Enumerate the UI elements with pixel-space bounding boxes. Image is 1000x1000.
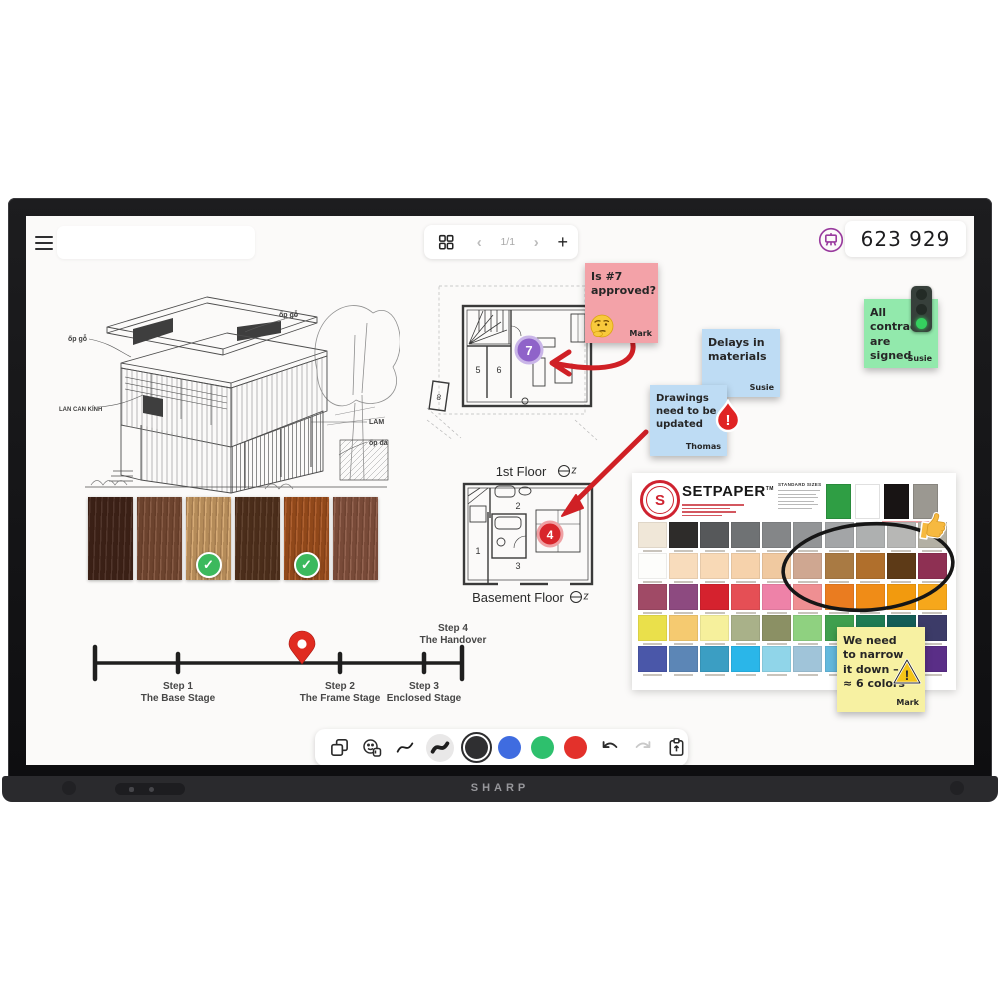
page-navigator: ‹ 1/1 › +: [424, 225, 578, 259]
basement-floor-label: Basement Floor: [472, 590, 564, 605]
basement-floor-plan[interactable]: 1 2 3 4 Basement Floor: [440, 478, 605, 610]
whiteboard-screen: ‹ 1/1 › + 623 929: [26, 216, 974, 765]
color-swatch[interactable]: [793, 522, 822, 552]
undo-icon[interactable]: [598, 736, 622, 760]
step2-label: Step 2: [325, 681, 355, 692]
clipboard-icon[interactable]: [664, 736, 688, 760]
prev-page-icon[interactable]: ‹: [477, 235, 482, 250]
sketch-label-lam: LAM: [369, 419, 384, 426]
room-3-label: 3: [515, 561, 520, 571]
color-swatch[interactable]: [825, 553, 854, 583]
svg-text:!: !: [726, 412, 731, 429]
color-swatch[interactable]: [793, 553, 822, 583]
color-swatch[interactable]: [887, 553, 916, 583]
step1-sublabel: The Base Stage: [141, 693, 216, 704]
pen-thin-icon[interactable]: [393, 736, 417, 760]
room-2-label: 2: [515, 501, 520, 511]
monitor-photo: ‹ 1/1 › + 623 929: [0, 0, 1000, 1000]
step3-label: Step 3: [409, 681, 439, 692]
wood-swatch[interactable]: [333, 497, 378, 580]
note-author: Thomas: [686, 442, 721, 452]
color-swatch[interactable]: [638, 615, 667, 645]
traffic-light-icon: [911, 286, 932, 332]
wood-samples[interactable]: ✓ ✓: [88, 497, 378, 580]
wood-swatch[interactable]: [88, 497, 133, 580]
color-swatch[interactable]: [638, 646, 667, 676]
color-swatch[interactable]: [700, 615, 729, 645]
step4-label: Step 4: [438, 623, 468, 634]
color-swatch[interactable]: [918, 584, 947, 614]
color-swatch[interactable]: [669, 553, 698, 583]
step4-sublabel: The Handover: [420, 635, 487, 646]
color-swatch[interactable]: [762, 615, 791, 645]
color-swatch[interactable]: [638, 584, 667, 614]
monitor-chin: SHARP: [2, 776, 998, 802]
color-swatch[interactable]: [793, 584, 822, 614]
color-swatch[interactable]: [762, 553, 791, 583]
note-narrow[interactable]: We need to narrow it down – ≈ 6 colors !…: [837, 627, 925, 712]
page-indicator: 1/1: [500, 236, 515, 248]
step3-sublabel: Enclosed Stage: [387, 693, 462, 704]
pen-color-dot[interactable]: [498, 736, 521, 759]
color-swatch[interactable]: [669, 522, 698, 552]
color-swatch[interactable]: [731, 522, 760, 552]
room-6-label: 6: [496, 365, 501, 375]
note-text: Drawings need to be updated: [656, 392, 721, 431]
color-swatch[interactable]: [700, 522, 729, 552]
wood-swatch[interactable]: ✓: [186, 497, 231, 580]
timeline-pin-icon: [289, 631, 315, 664]
pen-color-dot[interactable]: [531, 736, 554, 759]
color-swatch[interactable]: [638, 522, 667, 552]
house-drawing: [85, 297, 400, 493]
swatch-row-reds: [638, 584, 947, 614]
note-drawings[interactable]: Drawings need to be updated Thomas !: [650, 385, 727, 456]
wood-grain-texture: [333, 497, 378, 580]
color-swatch[interactable]: [825, 584, 854, 614]
color-swatch[interactable]: [825, 522, 854, 552]
drawing-toolbar: [315, 729, 688, 765]
color-swatch[interactable]: [918, 553, 947, 583]
pen-color-dot[interactable]: [465, 736, 488, 759]
note-author: Susie: [908, 354, 932, 364]
wood-grain-texture: [88, 497, 133, 580]
next-page-icon[interactable]: ›: [534, 235, 539, 250]
step2-sublabel: The Frame Stage: [300, 693, 381, 704]
color-swatch[interactable]: [669, 615, 698, 645]
house-sketch-image[interactable]: ốp gỗ ốp gỗ LAN CAN KÍNH LAM ốp đá: [55, 275, 400, 500]
session-code-badge: 623 929: [845, 221, 966, 257]
setpaper-logo: S: [640, 480, 680, 520]
ir-sensor: [950, 781, 964, 795]
session-code: 623 929: [861, 227, 951, 251]
header-swatch: [855, 484, 880, 519]
wood-swatch[interactable]: [137, 497, 182, 580]
svg-text:7: 7: [525, 343, 532, 358]
board-title-area: [57, 226, 255, 259]
warning-icon: !: [891, 657, 923, 687]
wood-swatch[interactable]: ✓: [284, 497, 329, 580]
color-swatch[interactable]: [669, 646, 698, 676]
color-swatch[interactable]: [887, 584, 916, 614]
share-board-icon[interactable]: [818, 227, 844, 253]
sketch-label-wood-left: ốp gỗ: [68, 334, 87, 343]
color-swatch[interactable]: [762, 522, 791, 552]
approved-check-icon: ✓: [294, 552, 320, 578]
color-swatch[interactable]: [762, 584, 791, 614]
color-swatch[interactable]: [856, 584, 885, 614]
level-mark-icon: [559, 466, 577, 477]
pen-color-dot[interactable]: [564, 736, 587, 759]
color-swatch[interactable]: [731, 615, 760, 645]
header-swatch: [884, 484, 909, 519]
swatch-row-neutrals: [638, 522, 947, 552]
sketch-label-stone: ốp đá: [369, 439, 388, 447]
color-swatch[interactable]: [700, 553, 729, 583]
marker-4[interactable]: 4: [538, 522, 562, 546]
add-page-icon[interactable]: +: [557, 232, 568, 253]
color-swatch[interactable]: [731, 553, 760, 583]
duplicate-icon[interactable]: [327, 736, 351, 760]
first-floor-plan[interactable]: 5 6 8 7 1st Floor: [425, 280, 600, 480]
color-swatch[interactable]: [793, 615, 822, 645]
marker-7[interactable]: 7: [516, 337, 542, 363]
wood-grain-texture: [137, 497, 182, 580]
sizes-heading: STANDARD SIZES: [778, 482, 821, 487]
thumbs-up-sticker[interactable]: [910, 505, 953, 548]
sharp-logo: SHARP: [2, 782, 998, 794]
color-swatch[interactable]: [669, 584, 698, 614]
color-swatch[interactable]: [731, 584, 760, 614]
note-author: Susie: [750, 383, 774, 393]
sketch-label-railing: LAN CAN KÍNH: [59, 405, 102, 413]
swatch-row-browns: [638, 553, 947, 583]
menu-icon[interactable]: [35, 236, 53, 250]
color-swatch[interactable]: [793, 646, 822, 676]
page-overview-icon[interactable]: [434, 230, 458, 254]
svg-text:4: 4: [547, 528, 554, 542]
step1-label: Step 1: [163, 681, 193, 692]
urgent-flame-icon: !: [713, 399, 743, 435]
wood-swatch[interactable]: [235, 497, 280, 580]
sticker-emoji-icon[interactable]: [360, 736, 384, 760]
color-swatch[interactable]: [731, 646, 760, 676]
color-swatch[interactable]: [856, 553, 885, 583]
color-swatch[interactable]: [638, 553, 667, 583]
note-author: Mark: [629, 329, 652, 339]
color-swatch[interactable]: [700, 584, 729, 614]
redo-icon[interactable]: [631, 736, 655, 760]
thinking-face-icon: [589, 313, 615, 339]
pen-thick-icon[interactable]: [426, 734, 454, 762]
svg-text:!: !: [905, 667, 910, 683]
level-mark-icon: [571, 592, 589, 603]
color-swatch[interactable]: [762, 646, 791, 676]
note-author: Mark: [896, 698, 919, 708]
color-swatch[interactable]: [700, 646, 729, 676]
room-1-label: 1: [475, 546, 480, 556]
approved-check-icon: ✓: [196, 552, 222, 578]
svg-text:8: 8: [436, 393, 442, 403]
wood-grain-texture: [235, 497, 280, 580]
note-approved[interactable]: Is #7 approved? Mark: [585, 263, 658, 343]
room-5-label: 5: [475, 365, 480, 375]
project-timeline[interactable]: Step 1 The Base Stage Step 2 The Frame S…: [85, 618, 500, 710]
chart-brand: SETPAPERTM: [682, 483, 774, 500]
header-swatch: [826, 484, 851, 519]
note-text: Delays in materials: [708, 336, 774, 365]
first-floor-label: 1st Floor: [496, 464, 547, 479]
color-swatch[interactable]: [856, 522, 885, 552]
pen-color-dots: [465, 736, 587, 759]
note-text: Is #7 approved?: [591, 270, 652, 299]
